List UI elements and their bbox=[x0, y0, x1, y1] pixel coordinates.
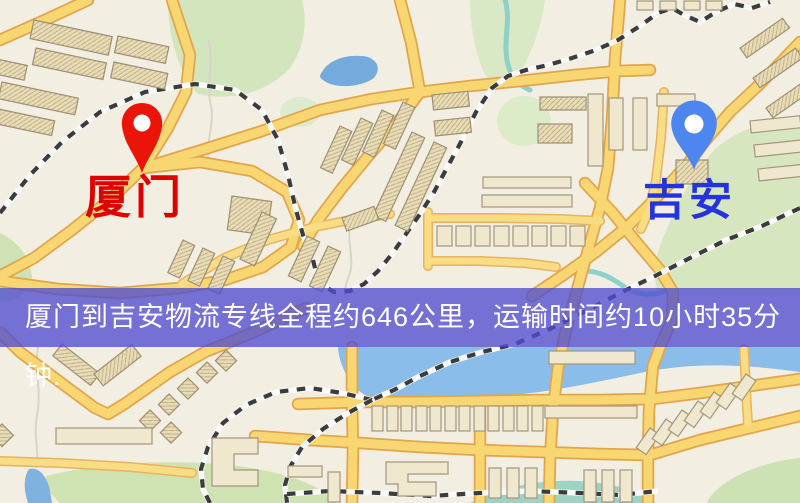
red-map-pin bbox=[122, 103, 162, 173]
origin-pin-icon[interactable] bbox=[120, 100, 164, 174]
map-canvas[interactable] bbox=[0, 0, 800, 503]
map-viewport[interactable]: 厦门到吉安物流专线全程约646公里，运输时间约10小时35分钟. 厦门 吉安 bbox=[0, 0, 800, 503]
destination-pin-icon[interactable] bbox=[669, 99, 719, 171]
origin-city-label: 厦门 bbox=[85, 174, 185, 220]
route-info-banner: 厦门到吉安物流专线全程约646公里，运输时间约10小时35分钟. bbox=[0, 288, 800, 347]
pin-hole bbox=[685, 115, 704, 134]
pin-hole bbox=[134, 115, 151, 132]
destination-city-label: 吉安 bbox=[643, 180, 735, 223]
route-info-text: 厦门到吉安物流专线全程约646公里，运输时间约10小时35分钟. bbox=[0, 288, 800, 406]
blue-map-pin bbox=[671, 101, 717, 170]
